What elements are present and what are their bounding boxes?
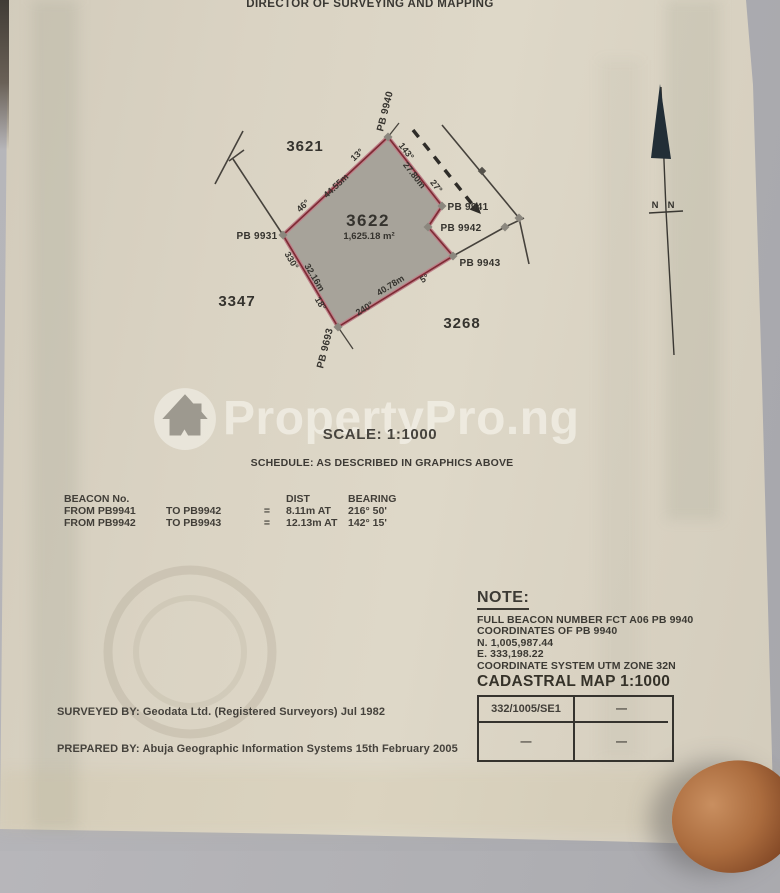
cadastral-cell-sheet: 332/1005/SE1 bbox=[479, 697, 575, 723]
boundary-line-left bbox=[215, 131, 283, 235]
north-label-right: N bbox=[668, 200, 675, 211]
beacon-label-pb9943: PB 9943 bbox=[459, 258, 500, 269]
note-line: E. 333,198.22 bbox=[477, 649, 693, 660]
boundary-line-right bbox=[442, 125, 529, 264]
beacon-row-to: TO PB9943 bbox=[166, 517, 254, 529]
prepared-by-line: PREPARED BY: Abuja Geographic Informatio… bbox=[57, 743, 458, 755]
beacon-table-header-bearing: BEARING bbox=[348, 493, 418, 505]
beacon-label-pb9940: PB 9940 bbox=[375, 90, 396, 133]
beacon-label-pb9693: PB 9693 bbox=[315, 327, 336, 370]
beacon-label-pb9941: PB 9941 bbox=[447, 202, 488, 213]
beacon-table: BEACON No. DIST BEARING FROM PB9941 TO P… bbox=[64, 493, 418, 529]
note-section: NOTE: FULL BEACON NUMBER FCT A06 PB 9940… bbox=[477, 589, 693, 672]
beacon-row-from: FROM PB9941 bbox=[64, 505, 166, 517]
cadastral-cell: — bbox=[479, 723, 575, 760]
cadastral-cell: — bbox=[575, 723, 668, 760]
beacon-table-header-dist: DIST bbox=[280, 493, 348, 505]
north-label-left: N bbox=[652, 200, 659, 211]
neighbor-plot-label-3268: 3268 bbox=[443, 315, 480, 332]
note-line: COORDINATE SYSTEM UTM ZONE 32N bbox=[477, 661, 693, 672]
beacon-row-from: FROM PB9942 bbox=[64, 517, 166, 529]
schedule-label: SCHEDULE: AS DESCRIBED IN GRAPHICS ABOVE bbox=[232, 457, 532, 469]
cadastral-table: 332/1005/SE1 — — — bbox=[477, 695, 674, 762]
beacon-row-to: TO PB9942 bbox=[166, 505, 254, 517]
note-title: NOTE: bbox=[477, 589, 529, 610]
plot-area-label: 1,625.18 m² bbox=[343, 231, 394, 242]
beacon-label-pb9931: PB 9931 bbox=[236, 231, 277, 242]
beacon-row-eq: = bbox=[254, 517, 280, 529]
plot-number-label: 3622 bbox=[346, 211, 390, 230]
beacon-row-dist: 12.13m AT bbox=[280, 517, 348, 529]
neighbor-plot-label-3347: 3347 bbox=[218, 293, 255, 310]
north-arrow: N N bbox=[649, 84, 683, 355]
boundary-tick bbox=[478, 167, 486, 175]
beacon-label-pb9942: PB 9942 bbox=[440, 223, 481, 234]
scale-label: SCALE: 1:1000 bbox=[280, 426, 480, 443]
beacon-row-bearing: 142° 15' bbox=[348, 517, 418, 529]
boundary-node bbox=[500, 222, 509, 231]
cadastral-cell: — bbox=[575, 697, 668, 723]
neighbor-plot-label-3621: 3621 bbox=[286, 138, 323, 155]
beacon-row-dist: 8.11m AT bbox=[280, 505, 348, 517]
beacon-row-bearing: 216° 50' bbox=[348, 505, 418, 517]
beacon-row-eq: = bbox=[254, 505, 280, 517]
beacon-table-header-beacon: BEACON No. bbox=[64, 493, 254, 505]
cadastral-map-title: CADASTRAL MAP 1:1000 bbox=[477, 673, 670, 691]
surveyed-by-line: SURVEYED BY: Geodata Ltd. (Registered Su… bbox=[57, 706, 385, 718]
